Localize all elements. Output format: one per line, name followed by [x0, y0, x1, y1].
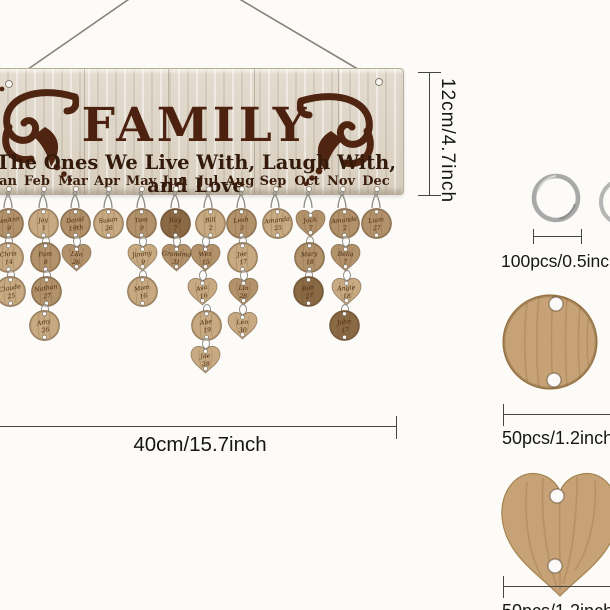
svg-text:14: 14	[4, 259, 13, 267]
month-label-feb: Feb	[17, 174, 57, 189]
svg-text:18: 18	[305, 259, 314, 267]
wire-hook	[167, 191, 183, 209]
birthday-tag-round: Susan26	[93, 208, 124, 239]
svg-text:Joy: Joy	[36, 216, 49, 224]
svg-text:25: 25	[272, 225, 282, 233]
ring-dimension-line	[533, 236, 581, 237]
birthday-tag-heart: Leo30	[226, 310, 259, 341]
birthday-tag-heart: Lila26	[60, 242, 93, 273]
svg-text:1: 1	[41, 225, 46, 232]
birthday-tag-round: Amy26	[29, 310, 60, 341]
birthday-tag-round: Claude25	[0, 276, 26, 307]
birthday-tag-round: Bob27	[293, 276, 324, 307]
wire-hook	[0, 191, 16, 209]
svg-text:9: 9	[139, 225, 144, 232]
svg-text:18: 18	[342, 293, 350, 301]
svg-text:Tom: Tom	[134, 216, 148, 224]
svg-text:Lila: Lila	[69, 251, 83, 259]
string-hole-left	[5, 80, 13, 88]
disc-count-label: 50pcs/1.2inch	[502, 428, 610, 449]
heart-dimension-tick-left	[503, 576, 504, 598]
svg-text:17: 17	[238, 258, 247, 266]
birthday-tag-round: Chris14	[0, 242, 24, 273]
birthday-tag-round: Joy1	[28, 208, 59, 239]
width-dimension-line	[0, 426, 397, 427]
string-hole-right	[375, 78, 383, 86]
svg-text:7: 7	[308, 225, 313, 232]
svg-text:Pam: Pam	[37, 251, 52, 259]
svg-text:27: 27	[41, 292, 51, 300]
wooden-disc-heart	[497, 462, 610, 602]
birthday-tag-round: John17	[329, 310, 360, 341]
wire-hook	[67, 191, 83, 209]
birthday-tag-round: Joe17	[227, 242, 258, 273]
birthday-tag-round: Liam27	[361, 208, 392, 239]
birthday-tag-round: Nathan27	[31, 276, 62, 307]
svg-text:7: 7	[343, 259, 347, 266]
wire-hook	[267, 191, 283, 209]
svg-text:Lin: Lin	[237, 285, 248, 292]
width-dimension-label: 40cm/15.7inch	[0, 433, 400, 457]
wire-hook	[133, 191, 149, 209]
svg-text:Chris: Chris	[0, 250, 16, 258]
birthday-tag-heart: Joe28	[189, 344, 222, 375]
svg-text:16: 16	[138, 292, 147, 300]
birthday-tag-round: Bill2	[195, 208, 226, 239]
plaque-title: FAMILY	[0, 102, 403, 149]
wire-hook	[368, 191, 384, 209]
svg-text:Leo: Leo	[235, 319, 248, 327]
heart-dimension-line	[503, 586, 610, 587]
birthday-tag-heart: Ava16	[186, 276, 219, 307]
birthday-tag-round: LeeAnn9	[0, 208, 24, 239]
svg-text:26: 26	[103, 225, 113, 233]
svg-text:26: 26	[70, 259, 79, 267]
svg-text:30: 30	[238, 327, 246, 334]
birthday-tag-round: Tom9	[126, 208, 157, 239]
svg-text:Wes: Wes	[198, 250, 211, 258]
svg-text:7: 7	[173, 225, 177, 232]
disc-dimension-tick-left	[503, 404, 504, 426]
wire-hook	[300, 191, 316, 209]
birthday-tag-round: Ray7	[160, 208, 191, 239]
disc-dimension-line	[503, 414, 610, 415]
birthday-tag-round: Amanda2	[329, 208, 360, 239]
svg-text:27: 27	[371, 225, 381, 233]
metal-ring	[527, 169, 587, 229]
birthday-tag-heart: Lin28	[227, 276, 260, 307]
svg-text:Joe: Joe	[198, 353, 211, 361]
birthday-tag-round: Amanda25	[262, 208, 293, 239]
svg-text:3: 3	[239, 225, 244, 232]
height-dimension-tick-top	[418, 72, 441, 73]
birthday-tag-heart: Bella7	[329, 242, 362, 273]
birthday-tag-round: Mom16	[127, 276, 158, 307]
birthday-tag-round: Mary18	[294, 242, 325, 273]
product-dimension-diagram: FAMILY The Ones We Live With, Laugh With…	[0, 0, 610, 610]
svg-text:19: 19	[202, 326, 211, 334]
wire-hook	[100, 191, 116, 209]
svg-text:31: 31	[172, 259, 180, 266]
birthday-tag-round: Pam8	[30, 242, 61, 273]
svg-text:Bella: Bella	[336, 251, 353, 259]
svg-text:28: 28	[238, 293, 247, 300]
wire-hook	[35, 191, 51, 209]
wire-hook	[200, 191, 216, 209]
birthday-tag-round: David19th	[60, 208, 91, 239]
ring-count-label: 100pcs/0.5inch	[501, 251, 610, 272]
height-dimension-line	[429, 73, 430, 196]
height-dimension-label: 12cm/4.7inch	[436, 78, 458, 203]
svg-text:17: 17	[340, 326, 349, 334]
svg-text:Ray: Ray	[168, 217, 182, 225]
wire-hook	[233, 191, 249, 209]
birthday-tag-heart: Angie18	[330, 276, 363, 307]
svg-text:2: 2	[207, 225, 213, 232]
heart-count-label: 50pcs/1.2inch	[502, 601, 610, 610]
svg-text:28: 28	[200, 361, 209, 369]
svg-text:Angie: Angie	[336, 284, 356, 292]
svg-text:Bill: Bill	[203, 216, 215, 224]
svg-text:8: 8	[43, 259, 47, 266]
birthday-tag-heart: Jack7	[294, 208, 327, 239]
metal-ring-partial	[598, 174, 610, 234]
wire-hook	[334, 191, 350, 209]
wooden-disc-round	[497, 289, 603, 395]
birthday-tag-round: Leah3	[226, 208, 257, 239]
birthday-tag-heart: Wes15	[189, 242, 222, 273]
birthday-tag-heart: Jimmy9	[126, 242, 159, 273]
birthday-tag-round: Abe19	[191, 310, 222, 341]
ring-dimension-tick-right	[581, 229, 582, 244]
svg-text:15: 15	[201, 259, 210, 267]
svg-text:2: 2	[341, 225, 347, 232]
ring-dimension-tick-left	[533, 229, 534, 244]
